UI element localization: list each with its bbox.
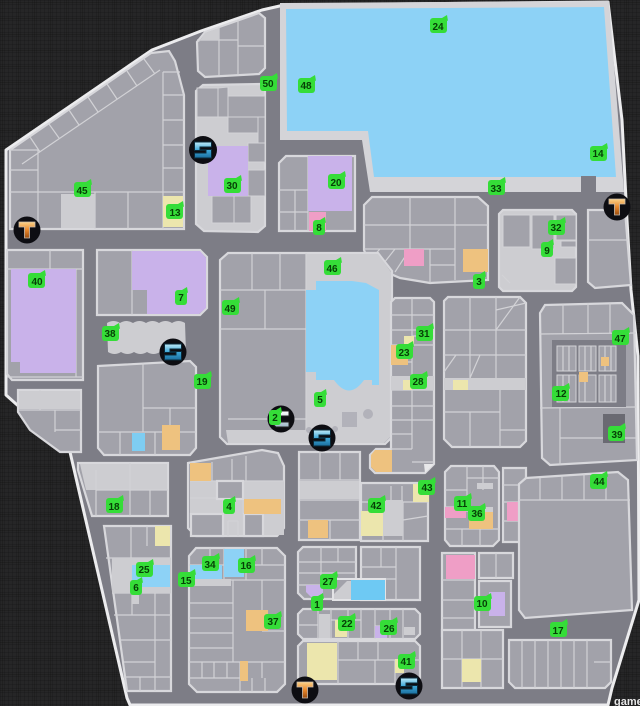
svg-text:46: 46 <box>326 264 338 275</box>
svg-text:2: 2 <box>272 413 278 424</box>
svg-text:44: 44 <box>593 477 605 488</box>
svg-text:26: 26 <box>383 624 395 635</box>
svg-text:43: 43 <box>421 483 433 494</box>
svg-text:19: 19 <box>196 377 208 388</box>
svg-text:42: 42 <box>370 501 382 512</box>
svg-text:8: 8 <box>316 223 322 234</box>
svg-text:11: 11 <box>457 499 468 510</box>
svg-text:24: 24 <box>432 22 444 33</box>
svg-text:1: 1 <box>314 600 320 611</box>
svg-text:41: 41 <box>400 657 412 668</box>
svg-text:32: 32 <box>550 223 562 234</box>
svg-text:48: 48 <box>300 81 312 92</box>
svg-text:4: 4 <box>226 502 232 513</box>
svg-text:33: 33 <box>490 184 502 195</box>
svg-text:37: 37 <box>267 617 279 628</box>
svg-text:49: 49 <box>224 304 236 315</box>
svg-text:9: 9 <box>544 246 550 257</box>
svg-text:22: 22 <box>341 619 353 630</box>
svg-text:36: 36 <box>471 509 483 520</box>
svg-text:50: 50 <box>262 79 274 90</box>
svg-text:40: 40 <box>31 277 43 288</box>
svg-text:3: 3 <box>476 277 482 288</box>
svg-text:45: 45 <box>76 186 88 197</box>
svg-text:14: 14 <box>592 149 604 160</box>
svg-text:15: 15 <box>180 576 192 587</box>
svg-text:7: 7 <box>178 293 184 304</box>
svg-text:47: 47 <box>614 334 626 345</box>
svg-text:23: 23 <box>398 348 410 359</box>
svg-text:10: 10 <box>476 599 488 610</box>
svg-text:39: 39 <box>611 430 623 441</box>
svg-text:13: 13 <box>169 208 181 219</box>
svg-text:28: 28 <box>412 377 424 388</box>
svg-text:16: 16 <box>240 561 252 572</box>
svg-text:18: 18 <box>108 502 120 513</box>
svg-text:31: 31 <box>418 329 430 340</box>
svg-text:game: game <box>614 696 640 706</box>
svg-text:25: 25 <box>138 565 150 576</box>
svg-text:20: 20 <box>330 178 342 189</box>
svg-text:34: 34 <box>204 560 216 571</box>
svg-text:5: 5 <box>317 395 323 406</box>
svg-text:27: 27 <box>322 577 334 588</box>
svg-text:30: 30 <box>226 181 238 192</box>
svg-text:17: 17 <box>552 626 564 637</box>
svg-text:38: 38 <box>104 329 116 340</box>
svg-text:6: 6 <box>133 583 139 594</box>
svg-text:12: 12 <box>555 389 567 400</box>
